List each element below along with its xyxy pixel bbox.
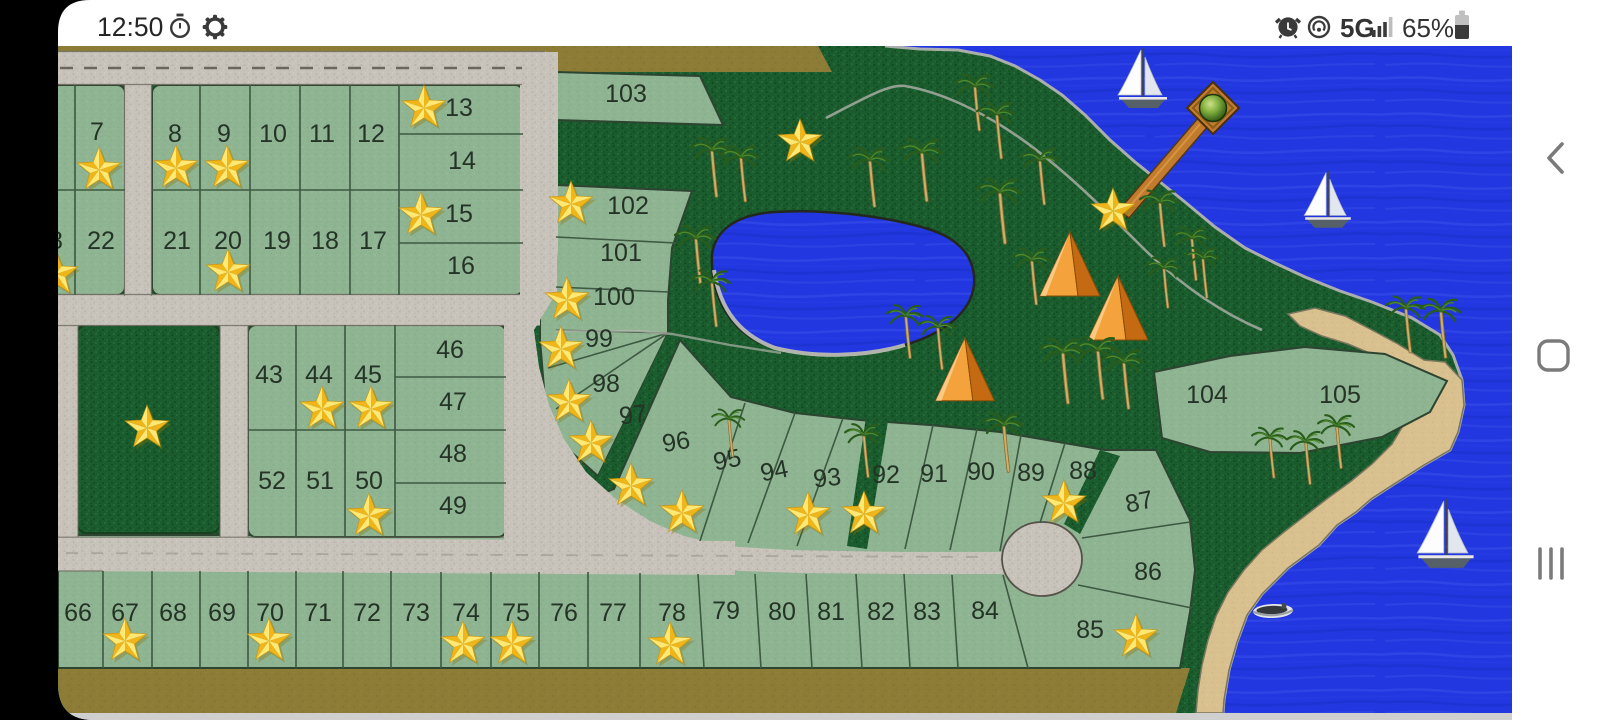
svg-text:68: 68: [159, 599, 187, 627]
svg-text:101: 101: [600, 239, 642, 267]
svg-text:19: 19: [263, 227, 291, 255]
svg-text:81: 81: [817, 598, 845, 626]
svg-text:97: 97: [618, 399, 649, 430]
svg-text:49: 49: [439, 492, 467, 520]
svg-text:47: 47: [439, 388, 467, 416]
svg-text:71: 71: [304, 599, 332, 627]
svg-text:21: 21: [163, 227, 191, 255]
svg-text:95: 95: [711, 444, 744, 477]
svg-text:74: 74: [452, 599, 480, 627]
svg-text:43: 43: [255, 361, 283, 389]
svg-text:50: 50: [355, 467, 383, 495]
svg-text:90: 90: [967, 458, 995, 486]
svg-text:86: 86: [1134, 558, 1162, 586]
svg-text:91: 91: [920, 460, 948, 488]
svg-text:104: 104: [1186, 381, 1228, 409]
svg-text:89: 89: [1017, 459, 1045, 487]
svg-text:75: 75: [502, 599, 530, 627]
svg-text:82: 82: [867, 598, 895, 626]
svg-text:103: 103: [605, 80, 647, 108]
svg-text:48: 48: [439, 440, 467, 468]
svg-text:7: 7: [90, 118, 104, 146]
svg-text:98: 98: [592, 370, 620, 398]
svg-text:52: 52: [258, 467, 286, 495]
svg-text:65%: 65%: [1402, 13, 1454, 43]
svg-text:77: 77: [599, 599, 627, 627]
svg-text:79: 79: [712, 597, 740, 625]
svg-text:87: 87: [1123, 485, 1156, 518]
svg-text:84: 84: [971, 597, 999, 625]
svg-text:92: 92: [872, 461, 900, 489]
svg-text:80: 80: [768, 598, 796, 626]
svg-text:85: 85: [1076, 616, 1104, 644]
svg-text:100: 100: [593, 283, 635, 311]
svg-text:72: 72: [353, 599, 381, 627]
svg-text:94: 94: [758, 455, 791, 488]
svg-text:22: 22: [87, 227, 115, 255]
svg-text:83: 83: [913, 598, 941, 626]
svg-text:12:50: 12:50: [97, 12, 163, 42]
svg-text:45: 45: [354, 361, 382, 389]
svg-text:13: 13: [445, 94, 473, 122]
svg-text:15: 15: [445, 200, 473, 228]
svg-text:96: 96: [660, 426, 692, 458]
svg-text:10: 10: [259, 120, 287, 148]
svg-text:44: 44: [305, 361, 333, 389]
svg-text:76: 76: [550, 599, 578, 627]
svg-text:88: 88: [1069, 457, 1097, 485]
svg-text:46: 46: [436, 336, 464, 364]
svg-text:66: 66: [64, 599, 92, 627]
svg-text:78: 78: [658, 599, 686, 627]
svg-text:93: 93: [812, 463, 843, 494]
svg-text:105: 105: [1319, 381, 1361, 409]
svg-text:99: 99: [585, 325, 613, 353]
svg-text:8: 8: [168, 120, 182, 148]
svg-text:51: 51: [306, 467, 334, 495]
svg-text:102: 102: [607, 192, 649, 220]
svg-text:73: 73: [402, 599, 430, 627]
svg-text:12: 12: [357, 120, 385, 148]
svg-text:18: 18: [311, 227, 339, 255]
svg-text:11: 11: [309, 120, 335, 148]
svg-text:17: 17: [359, 227, 387, 255]
svg-text:5G: 5G: [1340, 13, 1375, 43]
svg-text:16: 16: [447, 252, 475, 280]
svg-text:69: 69: [208, 599, 236, 627]
svg-text:14: 14: [448, 147, 476, 175]
svg-text:9: 9: [217, 120, 231, 148]
